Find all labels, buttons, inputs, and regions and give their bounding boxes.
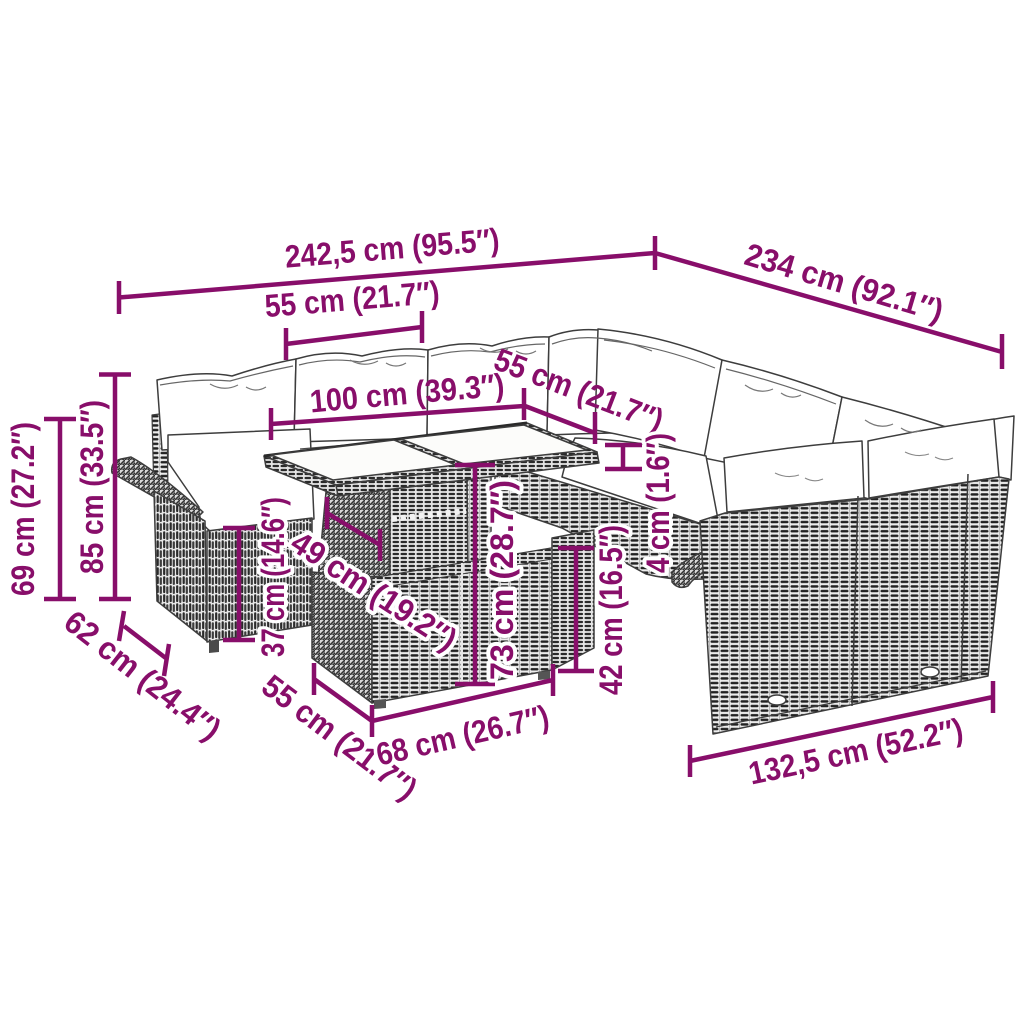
svg-text:37 cm (14.6″): 37 cm (14.6″)	[255, 497, 291, 657]
svg-text:73 cm (28.7″): 73 cm (28.7″)	[484, 480, 520, 680]
svg-text:42 cm (16.5″): 42 cm (16.5″)	[593, 525, 629, 695]
svg-text:4 cm (1.6″): 4 cm (1.6″)	[640, 433, 676, 573]
svg-text:69 cm (27.2″): 69 cm (27.2″)	[5, 422, 41, 596]
svg-text:85 cm (33.5″): 85 cm (33.5″)	[74, 400, 110, 574]
